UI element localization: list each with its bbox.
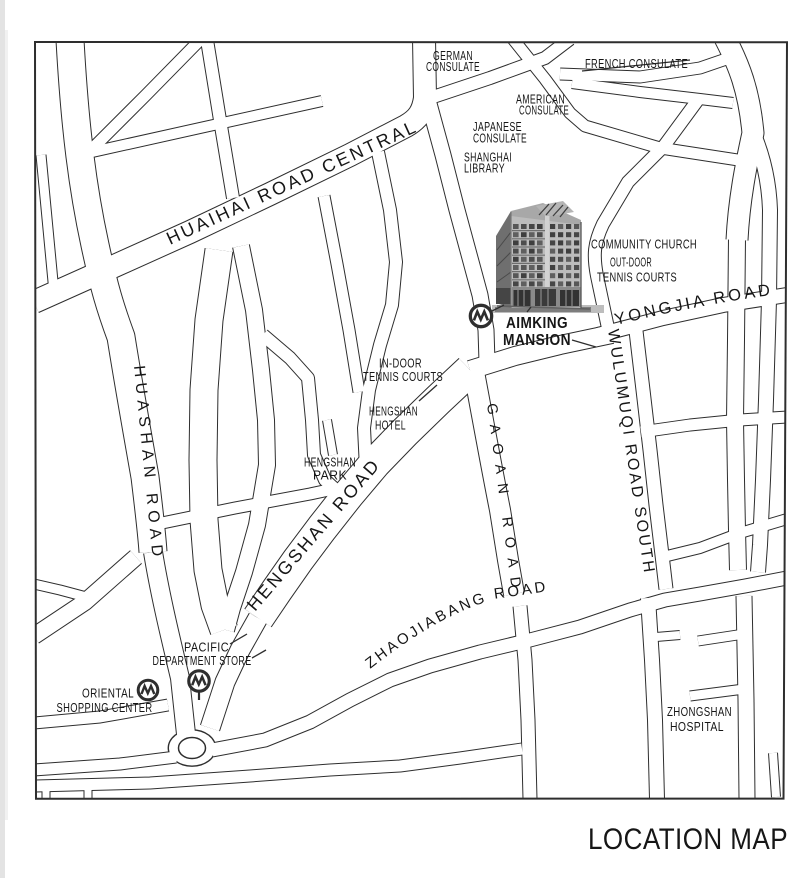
svg-text:LOCATION MAP: LOCATION MAP	[588, 823, 788, 856]
svg-text:ZHONGSHAN: ZHONGSHAN	[667, 704, 732, 719]
svg-text:MANSION: MANSION	[503, 332, 571, 349]
svg-text:COMMUNITY CHURCH: COMMUNITY CHURCH	[591, 237, 697, 252]
svg-text:HOSPITAL: HOSPITAL	[670, 719, 724, 734]
svg-text:HENGSHAN: HENGSHAN	[369, 404, 418, 419]
svg-text:CONSULATE: CONSULATE	[473, 131, 527, 146]
svg-text:CONSULATE: CONSULATE	[519, 103, 569, 118]
svg-text:PARK: PARK	[313, 468, 347, 483]
svg-text:HOTEL: HOTEL	[375, 418, 406, 433]
svg-text:TENNIS COURTS: TENNIS COURTS	[363, 369, 443, 384]
svg-text:TENNIS COURTS: TENNIS COURTS	[597, 270, 677, 285]
svg-text:FRENCH CONSULATE: FRENCH CONSULATE	[585, 56, 688, 71]
svg-text:DEPARTMENT STORE: DEPARTMENT STORE	[153, 653, 252, 668]
svg-text:LIBRARY: LIBRARY	[464, 161, 505, 176]
svg-text:ORIENTAL: ORIENTAL	[82, 686, 134, 701]
svg-text:CONSULATE: CONSULATE	[426, 59, 480, 74]
svg-text:SHOPPING CENTER: SHOPPING CENTER	[57, 700, 153, 715]
svg-text:AIMKING: AIMKING	[506, 315, 568, 332]
svg-text:OUT-DOOR: OUT-DOOR	[610, 255, 652, 270]
